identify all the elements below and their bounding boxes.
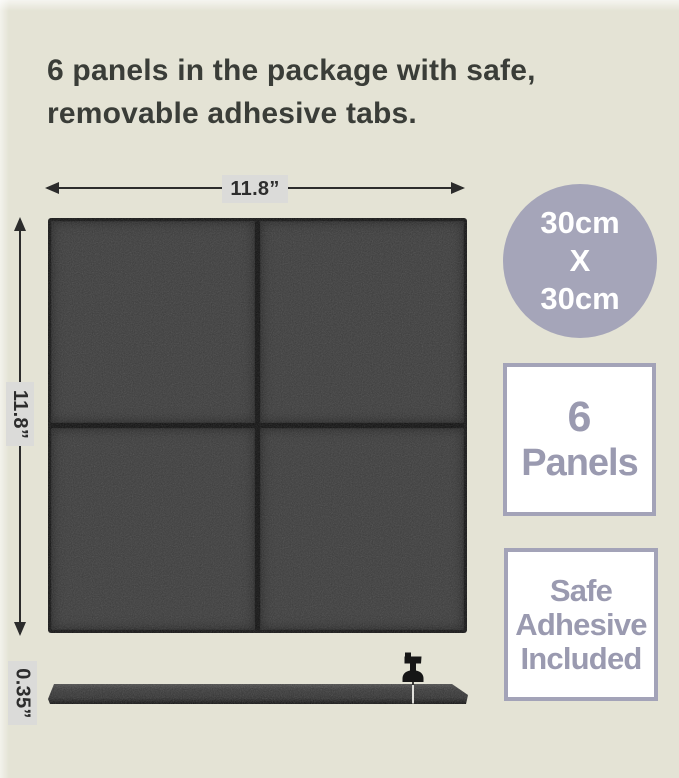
push-pin-icon [400, 652, 426, 704]
panel-count-word: Panels [521, 440, 638, 486]
headline: 6 panels in the package with safe, remov… [47, 49, 647, 135]
width-dimension-label: 11.8” [222, 175, 288, 203]
adhesive-line-3: Included [520, 642, 641, 676]
down-arrowhead-icon [14, 622, 26, 636]
height-value: 11.8” [9, 389, 32, 438]
panel-quadrant [260, 428, 464, 630]
thickness-value: 0.35” [11, 668, 34, 718]
headline-line-1: 6 panels in the package with safe, [47, 49, 647, 92]
size-circle-badge: 30cm X 30cm [503, 184, 657, 338]
adhesive-line-1: Safe [550, 574, 612, 608]
panel-quadrant [51, 221, 255, 423]
right-arrowhead-icon [451, 182, 465, 194]
panel-quadrant [260, 221, 464, 423]
size-line-2: X [570, 242, 591, 280]
height-dimension-label: 11.8” [6, 382, 34, 446]
left-arrowhead-icon [45, 182, 59, 194]
up-arrowhead-icon [14, 217, 26, 231]
headline-line-2: removable adhesive tabs. [47, 92, 647, 135]
thickness-dimension-label: 0.35” [8, 661, 37, 725]
acoustic-panel-image [48, 218, 467, 633]
adhesive-line-2: Adhesive [515, 608, 646, 642]
panel-count-badge: 6 Panels [503, 363, 656, 516]
size-line-1: 30cm [540, 204, 619, 242]
width-value: 11.8” [230, 178, 279, 201]
adhesive-included-badge: Safe Adhesive Included [504, 548, 658, 701]
panel-grid [51, 221, 464, 630]
size-line-3: 30cm [540, 280, 619, 318]
panel-count-number: 6 [568, 394, 592, 440]
product-infographic: 6 panels in the package with safe, remov… [0, 0, 679, 778]
panel-quadrant [51, 428, 255, 630]
